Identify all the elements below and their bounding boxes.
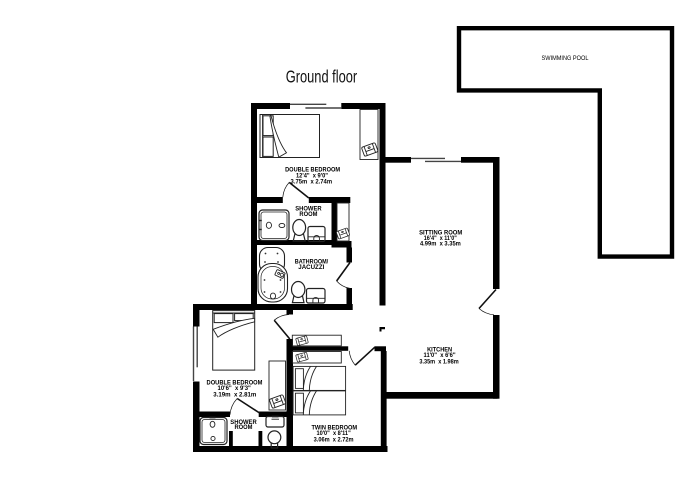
- svg-text:3.75m x 2.74m: 3.75m x 2.74m: [291, 179, 333, 186]
- svg-text:3.06m x 2.72m: 3.06m x 2.72m: [314, 436, 354, 443]
- svg-text:ROOM: ROOM: [299, 211, 317, 218]
- svg-text:Ground floor: Ground floor: [286, 67, 358, 87]
- svg-text:ROOM: ROOM: [235, 424, 253, 431]
- svg-text:3.35m x 1.98m: 3.35m x 1.98m: [419, 358, 459, 365]
- svg-text:SWIMMING POOL: SWIMMING POOL: [542, 55, 589, 62]
- svg-text:3.19m x 2.81m: 3.19m x 2.81m: [213, 391, 256, 398]
- svg-text:JACUZZI: JACUZZI: [298, 264, 324, 271]
- svg-text:4.99m x 3.35m: 4.99m x 3.35m: [420, 241, 461, 248]
